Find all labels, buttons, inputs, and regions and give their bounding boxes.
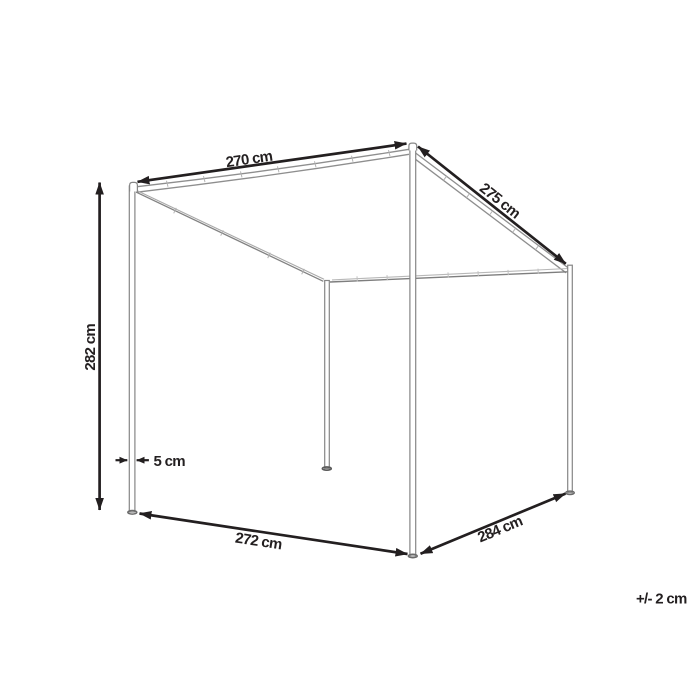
svg-text:284 cm: 284 cm: [475, 512, 525, 546]
svg-text:270 cm: 270 cm: [225, 148, 274, 172]
svg-text:282 cm: 282 cm: [82, 324, 99, 371]
svg-text:5 cm: 5 cm: [154, 453, 186, 470]
svg-text:+/- 2 cm: +/- 2 cm: [636, 591, 687, 608]
